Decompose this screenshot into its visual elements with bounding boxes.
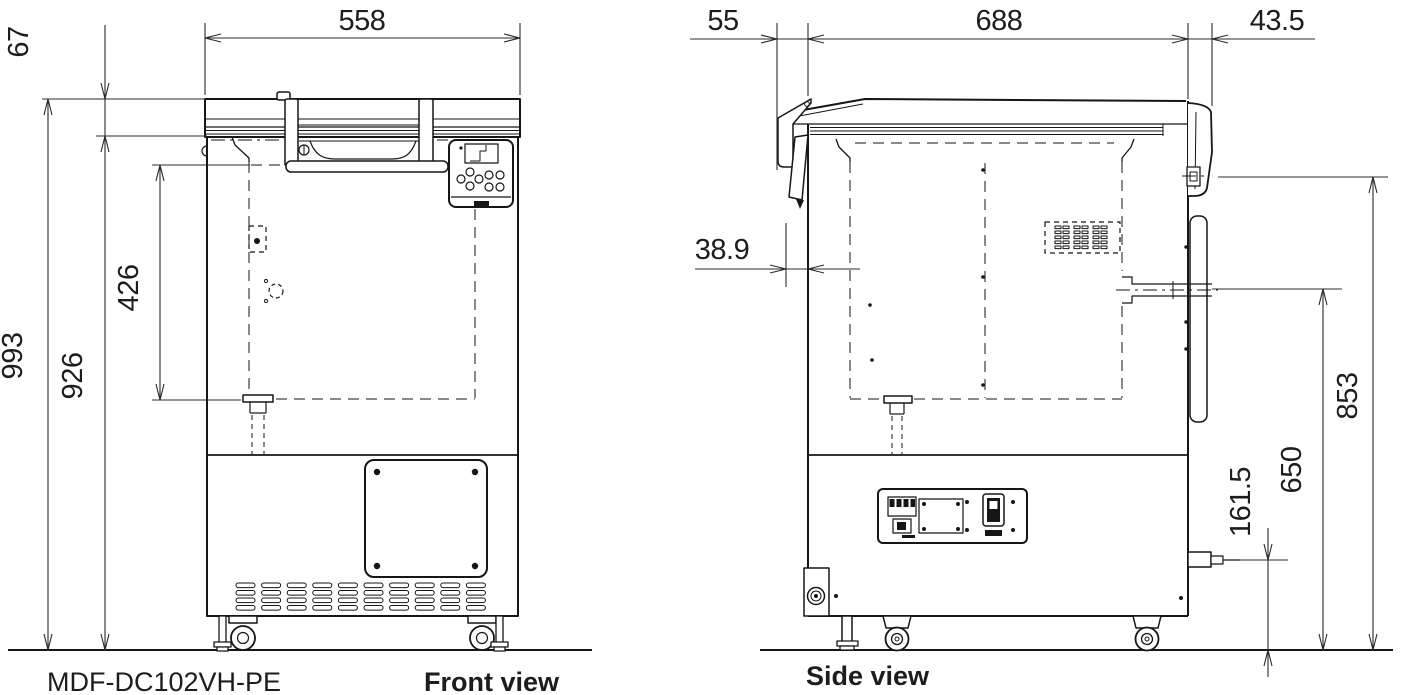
caster-wheel	[886, 628, 909, 651]
handle-bar	[286, 161, 448, 172]
front-bezel-edge	[1190, 216, 1207, 422]
dim-text-38-9: 38.9	[695, 234, 749, 266]
handle-bracket-right	[419, 99, 433, 166]
front-view-label: Front view	[424, 667, 560, 695]
dim-text-426: 426	[113, 265, 145, 312]
side-view: 55 688 43.5 38.9 853	[690, 5, 1393, 677]
rating-label	[985, 530, 1002, 536]
leveling-foot	[842, 616, 852, 642]
drawing-page: 558 67 926 993 426	[0, 0, 1404, 695]
dim-overall-height: 993	[0, 99, 52, 650]
panel-led	[459, 146, 462, 149]
front-view: 558 67 926 993 426	[0, 5, 592, 651]
dim-text-853: 853	[1332, 373, 1364, 420]
dim-text-161-5: 161.5	[1225, 467, 1257, 537]
dim-text-993: 993	[0, 333, 29, 380]
side-hinge	[778, 99, 811, 209]
dim-text-926: 926	[57, 353, 89, 400]
panel-latch	[474, 201, 489, 206]
dim-outlet-height: 161.5	[1225, 467, 1288, 677]
front-casters	[214, 616, 508, 651]
handle-bracket-left	[285, 99, 298, 166]
dim-front-width: 558	[205, 5, 520, 42]
leveling-foot	[219, 616, 226, 643]
dim-text-67: 67	[3, 26, 35, 57]
caster-wheel	[231, 626, 255, 650]
caption-row: MDF-DC102VH-PE Front view Side view	[47, 661, 930, 695]
model-number-label: MDF-DC102VH-PE	[47, 667, 281, 695]
technical-drawing: 558 67 926 993 426	[0, 0, 1404, 695]
power-outlet	[1188, 552, 1240, 567]
side-view-label: Side view	[806, 661, 930, 691]
dim-lid-top-height: 853	[1218, 177, 1388, 650]
front-lid	[205, 92, 520, 137]
side-casters	[837, 616, 1161, 651]
dim-text-650: 650	[1276, 447, 1308, 494]
dim-interior-height: 426	[113, 165, 164, 400]
electrical-panel	[878, 489, 1027, 543]
dim-text-688: 688	[976, 5, 1023, 37]
front-control-panel	[449, 140, 513, 207]
dim-text-55: 55	[707, 5, 738, 37]
dim-text-43-5: 43.5	[1250, 5, 1304, 37]
leveling-foot	[496, 616, 503, 643]
dim-text-558: 558	[339, 5, 386, 37]
keyhole-icon	[299, 145, 309, 155]
caster-wheel	[1136, 628, 1159, 651]
dim-top-row: 55 688 43.5	[690, 5, 1315, 43]
